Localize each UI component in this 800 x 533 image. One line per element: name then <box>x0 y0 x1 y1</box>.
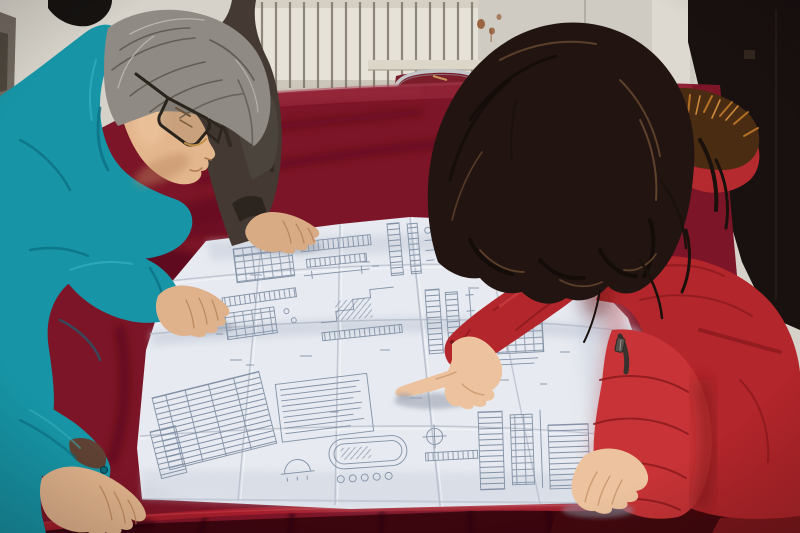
photo-scene <box>0 0 800 533</box>
vignette <box>0 0 800 533</box>
